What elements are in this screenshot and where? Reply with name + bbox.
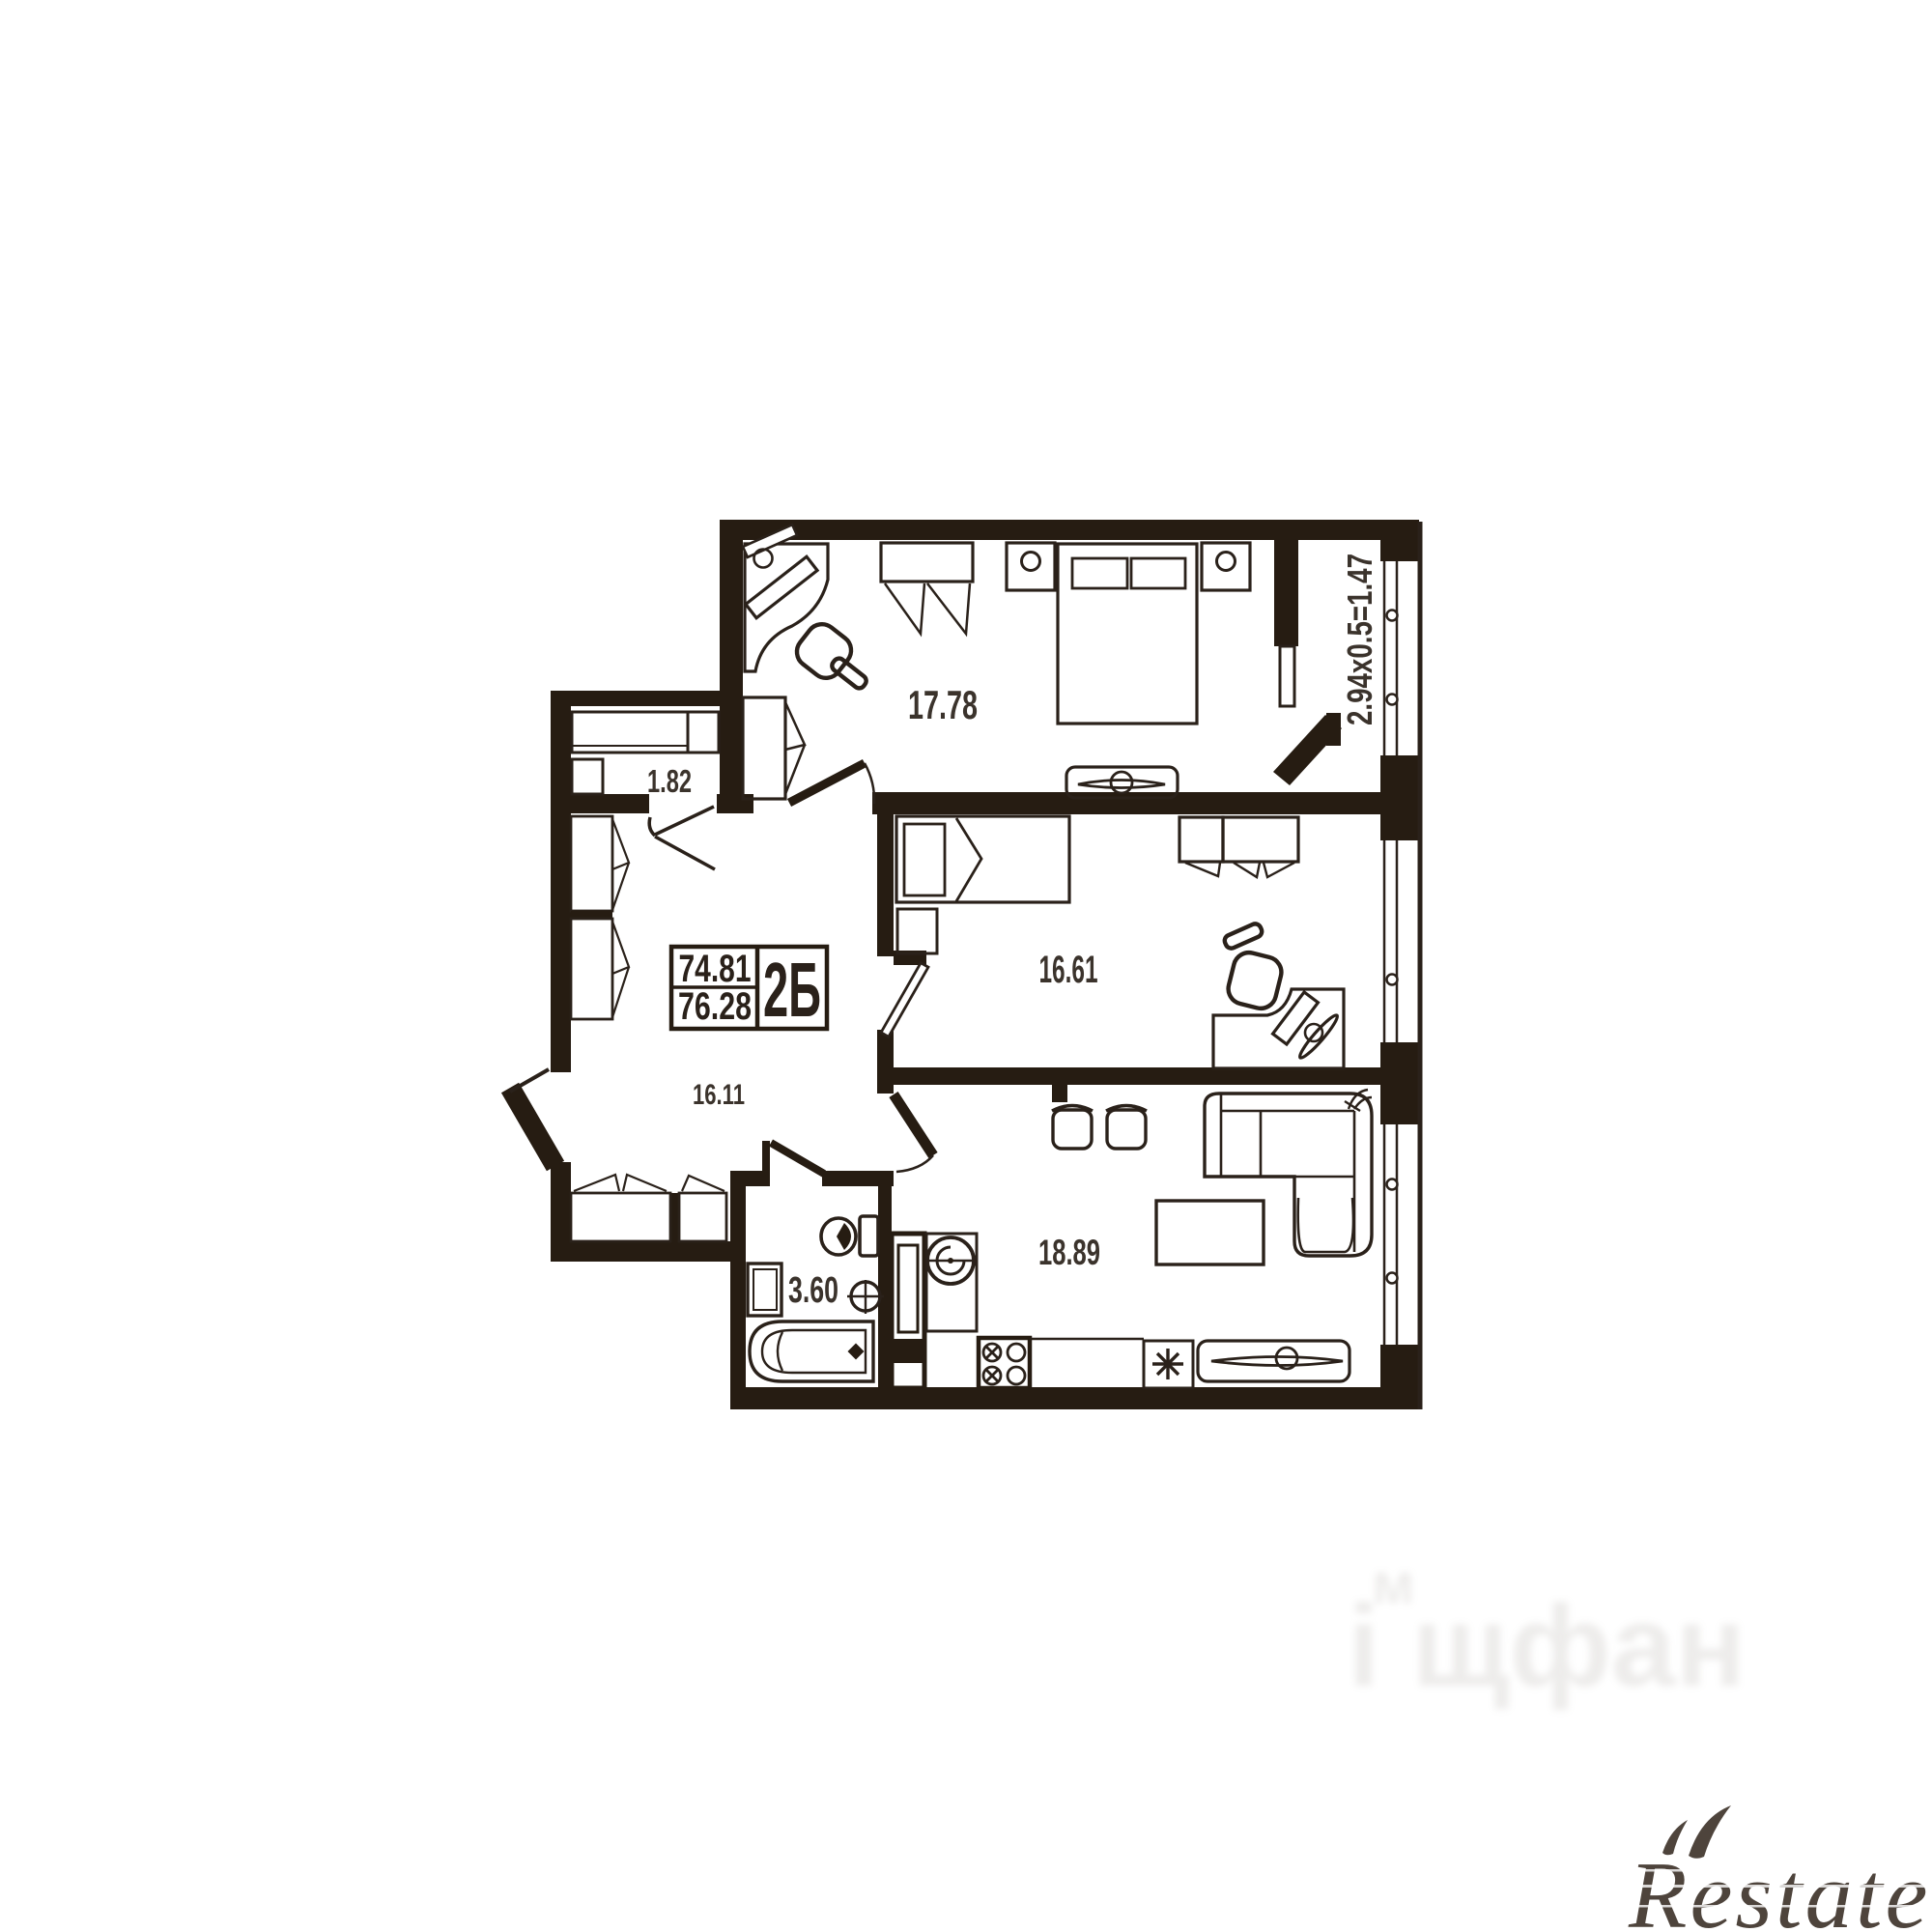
svg-text:м: м <box>1372 1551 1414 1616</box>
svg-text:18.89: 18.89 <box>1038 1233 1100 1272</box>
svg-text:2Б: 2Б <box>763 947 821 1033</box>
svg-text:16.11: 16.11 <box>693 1079 745 1111</box>
svg-text:74.81: 74.81 <box>679 948 752 990</box>
svg-text:3.60: 3.60 <box>788 1270 838 1311</box>
svg-text:16.61: 16.61 <box>1039 949 1098 991</box>
svg-text:1.82: 1.82 <box>647 763 692 799</box>
svg-text:2.94x0.5=1.47: 2.94x0.5=1.47 <box>1340 554 1379 725</box>
svg-text:17.78: 17.78 <box>908 682 978 727</box>
svg-text:76.28: 76.28 <box>678 985 752 1028</box>
